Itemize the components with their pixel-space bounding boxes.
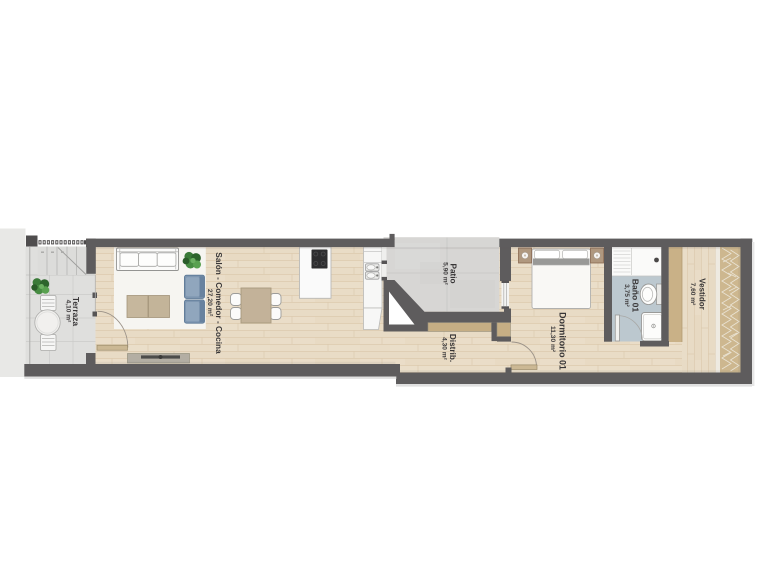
svg-text:7,60 m²: 7,60 m² xyxy=(689,283,696,307)
svg-text:Patio: Patio xyxy=(449,263,458,283)
svg-text:4,10 m²: 4,10 m² xyxy=(65,300,72,324)
svg-text:11,30 m²: 11,30 m² xyxy=(549,326,556,353)
svg-text:3,75 m²: 3,75 m² xyxy=(623,284,630,308)
svg-text:Salón - Comedor - Cocina: Salón - Comedor - Cocina xyxy=(214,252,224,354)
svg-text:27,20 m²: 27,20 m² xyxy=(206,289,213,317)
svg-text:Vestidor: Vestidor xyxy=(698,278,707,310)
svg-text:4,30 m²: 4,30 m² xyxy=(441,337,448,361)
svg-text:Dormitorio 01: Dormitorio 01 xyxy=(558,312,568,370)
svg-text:Baño 01: Baño 01 xyxy=(631,279,641,313)
svg-text:Distrib.: Distrib. xyxy=(448,334,457,362)
svg-text:5,90 m²: 5,90 m² xyxy=(442,262,449,286)
